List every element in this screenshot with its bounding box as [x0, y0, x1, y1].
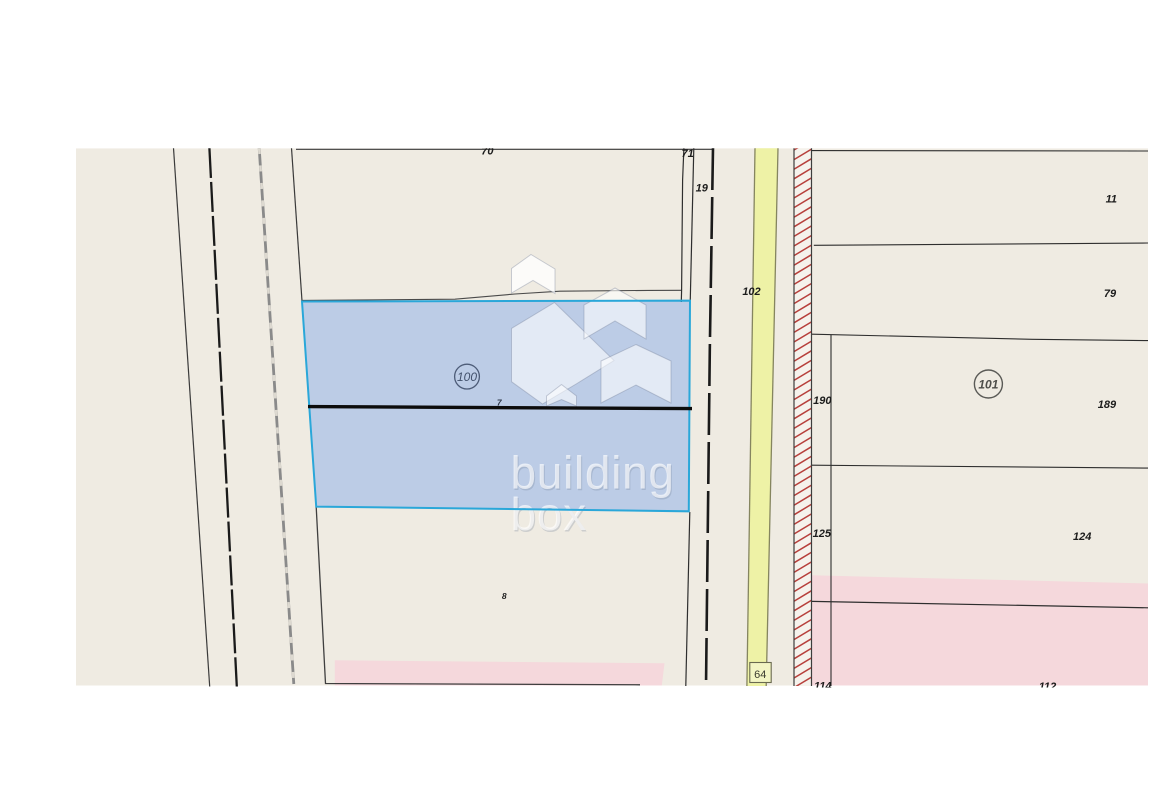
svg-text:101: 101 — [978, 377, 998, 391]
svg-text:8: 8 — [502, 591, 507, 601]
svg-text:11: 11 — [1106, 194, 1117, 206]
svg-text:189: 189 — [1098, 399, 1117, 411]
svg-text:79: 79 — [1104, 288, 1117, 300]
svg-text:19: 19 — [696, 182, 709, 194]
svg-text:box: box — [511, 488, 587, 540]
svg-text:190: 190 — [813, 395, 832, 407]
svg-text:124: 124 — [1073, 531, 1091, 543]
svg-text:100: 100 — [457, 370, 477, 384]
svg-text:125: 125 — [813, 528, 832, 540]
svg-text:64: 64 — [754, 669, 766, 681]
svg-text:71: 71 — [681, 148, 693, 160]
svg-text:102: 102 — [742, 286, 760, 298]
